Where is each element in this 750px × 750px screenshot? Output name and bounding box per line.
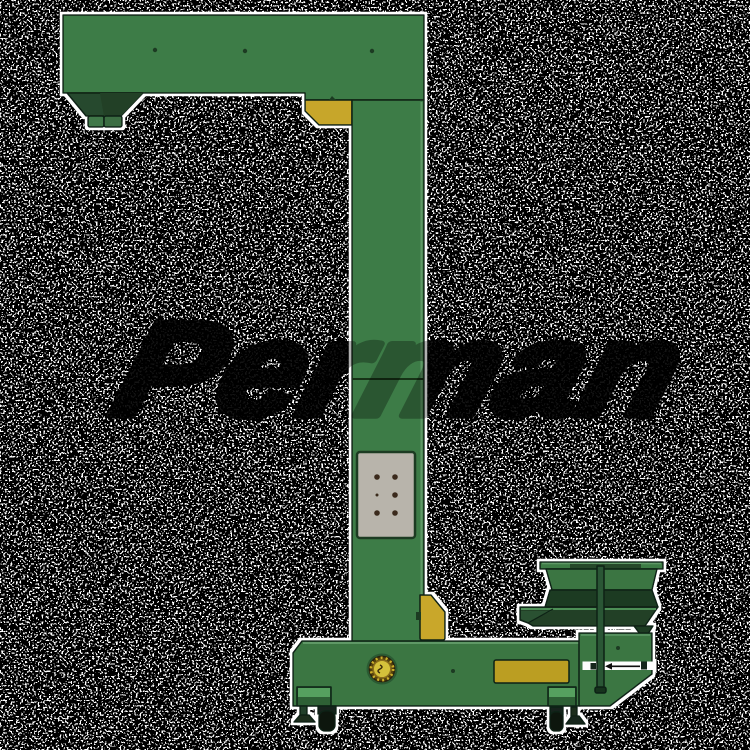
- svg-text:Perman: Perman: [100, 294, 701, 443]
